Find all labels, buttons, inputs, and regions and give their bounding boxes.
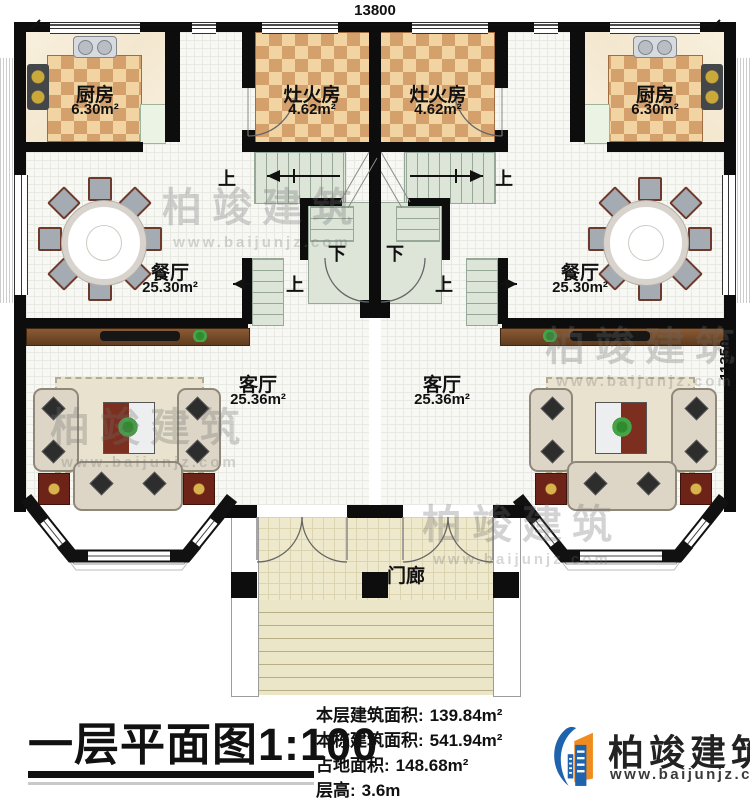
window-top-kitchen <box>50 22 140 34</box>
porch-column <box>493 572 519 598</box>
porch-column <box>362 572 388 598</box>
bay-window-wall <box>32 506 226 556</box>
porch-label: 门廊 <box>387 561 425 588</box>
end-table <box>680 473 712 505</box>
dining-area: 25.30m² <box>142 279 198 296</box>
bay-window-sill-line <box>36 516 222 564</box>
stair-lower-flight <box>310 206 354 242</box>
window-top-hall <box>534 22 558 34</box>
decor <box>569 758 572 760</box>
porch-side-rail <box>231 517 259 697</box>
refrigerator <box>584 104 610 144</box>
decor <box>569 772 572 774</box>
wall-left-upper <box>724 22 736 175</box>
kitchen-right-wall <box>165 32 180 142</box>
sofa-front <box>73 461 183 511</box>
wall-top <box>216 22 262 32</box>
porch-front-pier <box>225 505 257 518</box>
kitchen-area: 6.30m² <box>71 101 119 118</box>
table-plant <box>116 416 140 438</box>
brand-logo-icon <box>550 718 606 796</box>
dimension-width: 13800 <box>354 2 396 19</box>
bay-window-glass <box>524 506 718 556</box>
stove-room-bottom-wall <box>369 142 508 152</box>
bay-window-sill-line <box>528 516 714 564</box>
window-top-hall <box>192 22 216 34</box>
stove-room-left-wall <box>495 32 508 88</box>
wall-top <box>558 22 610 32</box>
stat-label: 本栋建筑面积: <box>316 731 424 750</box>
stair-down-label: 下 <box>328 240 346 266</box>
armchair <box>529 388 573 472</box>
stair-upper-flight <box>254 152 346 204</box>
brand-url: www.baijunjz.com <box>610 766 750 783</box>
side-steps-wall <box>242 258 252 324</box>
stair-stub-wall-v <box>300 198 308 260</box>
side-entry-steps <box>252 258 284 326</box>
stat-value: 139.84m² <box>430 706 503 725</box>
stat-label: 占地面积: <box>316 756 390 775</box>
stair-up-label: 上 <box>286 271 304 297</box>
dining-living-wall <box>14 318 248 328</box>
bay-window-corner <box>170 544 196 556</box>
stat-value: 541.94m² <box>430 731 503 750</box>
stat-label: 本层建筑面积: <box>316 706 424 725</box>
stat-label: 层高: <box>316 781 356 800</box>
window-top-stove-room <box>262 22 338 34</box>
logo-tower-small <box>568 754 574 778</box>
decor <box>569 767 572 769</box>
floor-plan-page: { "plan": { "dim_top": "13800", "dim_rig… <box>0 0 750 809</box>
right-edge-hatch <box>737 58 750 303</box>
porch-steps <box>257 600 493 695</box>
porch-column <box>231 572 257 598</box>
sofa-left <box>671 388 717 472</box>
bay-window-mullion <box>524 506 718 556</box>
stair-stub-wall-v <box>442 198 450 260</box>
kitchen-area: 6.30m² <box>631 101 679 118</box>
bay-window-corner <box>62 544 88 556</box>
television <box>570 331 650 341</box>
bay-window-glass <box>32 506 226 556</box>
bay-window-corner <box>662 544 688 556</box>
kitchen-right-wall <box>570 32 585 142</box>
dining-table <box>62 201 146 285</box>
end-table <box>183 473 215 505</box>
kitchen-sink <box>73 36 117 58</box>
bay-window-sill-line <box>40 522 218 570</box>
party-wall <box>369 22 381 318</box>
cabinet-plant <box>190 330 210 342</box>
kitchen-sink <box>633 36 677 58</box>
decor <box>577 750 584 752</box>
party-wall-stub <box>360 300 381 318</box>
living-area: 25.36m² <box>230 391 286 408</box>
living-area: 25.36m² <box>414 391 470 408</box>
title-underline-shadow <box>28 782 314 785</box>
stat-land-area: 占地面积:148.68m² <box>316 751 468 776</box>
bay-window-sill-line <box>532 522 710 570</box>
stair-up-label: 上 <box>495 165 513 191</box>
wall-left-upper <box>14 22 26 175</box>
porch-front-pier-center <box>347 505 403 518</box>
kitchen-bottom-wall <box>607 142 736 152</box>
dining-chair <box>688 227 712 251</box>
sofa-left <box>33 388 79 472</box>
side-entry-steps <box>466 258 498 326</box>
wall-top <box>488 22 534 32</box>
stove-room-area: 4.62m² <box>414 101 462 118</box>
armchair <box>177 388 221 472</box>
dining-chair <box>638 177 662 201</box>
window-top-kitchen <box>610 22 700 34</box>
dimension-height-value: 11350 <box>717 340 734 381</box>
stair-up-label: 上 <box>218 165 236 191</box>
stair-down-label: 下 <box>386 240 404 266</box>
stair-up-label: 上 <box>435 271 453 297</box>
porch-side-rail <box>493 517 521 697</box>
plan-title-text: 一层平面图 <box>28 719 258 770</box>
stat-value: 3.6m <box>362 781 401 800</box>
bay-window-corner <box>554 544 580 556</box>
left-edge-hatch <box>0 58 13 303</box>
stove-room-bottom-wall <box>242 142 381 152</box>
stove-room-area: 4.62m² <box>288 101 336 118</box>
decor <box>577 770 584 772</box>
decor <box>577 764 584 766</box>
cabinet-plant <box>540 330 560 342</box>
kitchen-bottom-wall <box>14 142 143 152</box>
end-table <box>535 473 567 505</box>
porch-front-pier <box>493 505 525 518</box>
dining-table <box>604 201 688 285</box>
window-top-stove-room <box>412 22 488 34</box>
window-left-dining <box>722 175 736 295</box>
dining-living-wall <box>502 318 736 328</box>
wall-top <box>140 22 192 32</box>
table-plant <box>610 416 634 438</box>
stat-floor-height: 层高:3.6m <box>316 776 400 801</box>
stat-building-area: 本栋建筑面积:541.94m² <box>316 726 502 751</box>
title-underline <box>28 771 314 778</box>
kitchen-stove <box>27 64 49 110</box>
stat-floor-area: 本层建筑面积:139.84m² <box>316 701 502 726</box>
side-steps-wall <box>498 258 508 324</box>
stat-value: 148.68m² <box>396 756 469 775</box>
bay-window-wall <box>524 506 718 556</box>
dining-chair <box>88 177 112 201</box>
kitchen-stove <box>701 64 723 110</box>
stair-lower-flight <box>396 206 440 242</box>
floor-plan: 13800 11350 厨房 6.30m² 厨房 6.30m² 灶火房 4.62… <box>0 0 750 700</box>
bay-window-mullion <box>32 506 226 556</box>
stair-upper-flight <box>404 152 496 204</box>
decor <box>569 763 572 765</box>
decor <box>577 757 584 759</box>
television <box>100 331 180 341</box>
dimension-height: 11350 <box>695 330 750 390</box>
stove-room-left-wall <box>242 32 255 88</box>
refrigerator <box>140 104 166 144</box>
dining-area: 25.30m² <box>552 279 608 296</box>
dining-chair <box>38 227 62 251</box>
sofa-front <box>567 461 677 511</box>
window-left-dining <box>14 175 28 295</box>
end-table <box>38 473 70 505</box>
